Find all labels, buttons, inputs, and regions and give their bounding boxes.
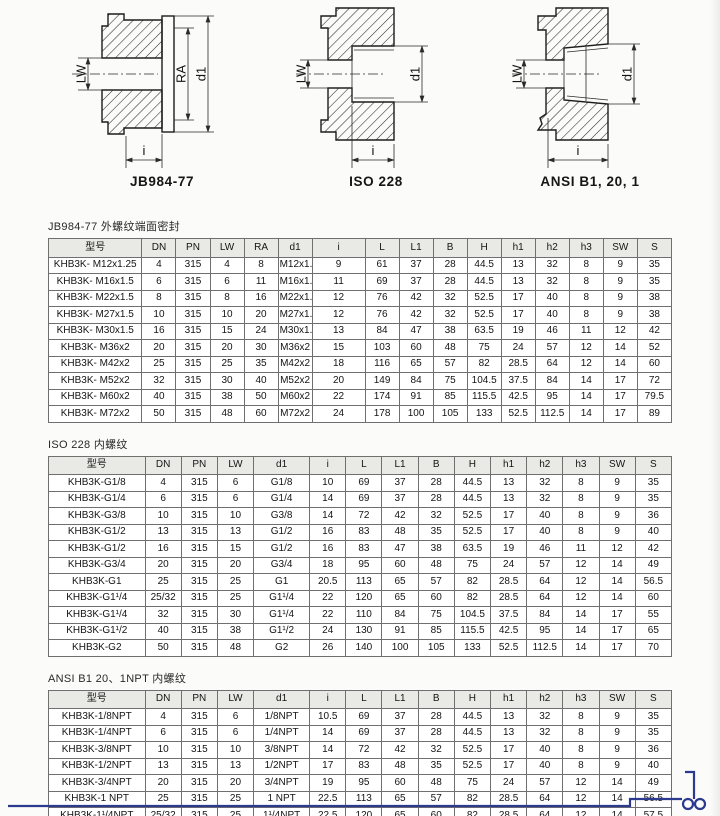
value-cell: 35 bbox=[418, 524, 454, 541]
value-cell: 25 bbox=[145, 574, 181, 591]
value-cell: 40 bbox=[527, 508, 563, 525]
model-cell: KHB3K- M12x1.25 bbox=[49, 257, 142, 274]
value-cell: 17 bbox=[599, 607, 635, 624]
value-cell: M27x1.5 bbox=[278, 307, 312, 324]
value-cell: 46 bbox=[527, 541, 563, 558]
value-cell: 82 bbox=[467, 356, 501, 373]
value-cell: 61 bbox=[365, 257, 399, 274]
value-cell: 6 bbox=[210, 274, 244, 291]
corner-ornament-icon bbox=[0, 756, 720, 816]
value-cell: 24 bbox=[244, 323, 278, 340]
value-cell: 17 bbox=[501, 290, 535, 307]
value-cell: 52.5 bbox=[454, 524, 490, 541]
value-cell: 35 bbox=[635, 709, 671, 726]
value-cell: 315 bbox=[181, 607, 217, 624]
value-cell: 14 bbox=[599, 590, 635, 607]
value-cell: 32 bbox=[527, 725, 563, 742]
value-cell: 14 bbox=[310, 491, 346, 508]
model-cell: KHB3K-G1 bbox=[49, 574, 146, 591]
value-cell: 60 bbox=[399, 340, 433, 357]
table-row: KHB3K-G1/463156G1/41469372844.513328935 bbox=[49, 491, 672, 508]
value-cell: 25/32 bbox=[145, 590, 181, 607]
column-header: H bbox=[454, 456, 490, 475]
value-cell: 40 bbox=[635, 524, 671, 541]
model-cell: KHB3K-G1/4 bbox=[49, 491, 146, 508]
value-cell: 37 bbox=[399, 274, 433, 291]
value-cell: 28.5 bbox=[501, 356, 535, 373]
value-cell: 60 bbox=[635, 590, 671, 607]
value-cell: 16 bbox=[310, 524, 346, 541]
value-cell: 63.5 bbox=[467, 323, 501, 340]
table-row: KHB3K-G12531525G120.511365578228.5641214… bbox=[49, 574, 672, 591]
value-cell: 40 bbox=[527, 524, 563, 541]
table-row: KHB3K- M22x1.58315816M22x1.51276423252.5… bbox=[49, 290, 672, 307]
value-cell: 20 bbox=[217, 557, 253, 574]
value-cell: 35 bbox=[635, 725, 671, 742]
value-cell: 1/4NPT bbox=[254, 725, 310, 742]
value-cell: 22 bbox=[312, 389, 365, 406]
model-cell: KHB3K- M16x1.5 bbox=[49, 274, 142, 291]
value-cell: 48 bbox=[210, 406, 244, 423]
model-cell: KHB3K-G1/8 bbox=[49, 475, 146, 492]
value-cell: 9 bbox=[599, 508, 635, 525]
value-cell: 116 bbox=[365, 356, 399, 373]
column-header: d1 bbox=[254, 456, 310, 475]
value-cell: 8 bbox=[569, 274, 603, 291]
value-cell: 315 bbox=[181, 475, 217, 492]
value-cell: 30 bbox=[244, 340, 278, 357]
column-header: h2 bbox=[527, 690, 563, 709]
value-cell: 24 bbox=[312, 406, 365, 423]
plug-cross-section-drawing: LW d1 i bbox=[490, 2, 690, 174]
value-cell: 60 bbox=[418, 590, 454, 607]
value-cell: 35 bbox=[637, 257, 671, 274]
value-cell: 57 bbox=[535, 340, 569, 357]
column-header: d1 bbox=[278, 239, 312, 258]
column-header: RA bbox=[244, 239, 278, 258]
value-cell: 46 bbox=[535, 323, 569, 340]
value-cell: 40 bbox=[145, 623, 181, 640]
value-cell: 11 bbox=[569, 323, 603, 340]
value-cell: 69 bbox=[346, 475, 382, 492]
column-header: LW bbox=[217, 690, 253, 709]
value-cell: 64 bbox=[535, 356, 569, 373]
value-cell: 35 bbox=[635, 491, 671, 508]
column-header: S bbox=[635, 690, 671, 709]
column-header: i bbox=[310, 456, 346, 475]
value-cell: 40 bbox=[244, 373, 278, 390]
value-cell: 37 bbox=[399, 257, 433, 274]
value-cell: 315 bbox=[176, 290, 210, 307]
value-cell: 69 bbox=[346, 709, 382, 726]
table-row: KHB3K- M27x1.5103151020M27x1.51276423252… bbox=[49, 307, 672, 324]
value-cell: 315 bbox=[176, 274, 210, 291]
dim-label-ra: RA bbox=[173, 65, 188, 83]
column-header: DN bbox=[145, 690, 181, 709]
value-cell: 315 bbox=[181, 491, 217, 508]
drawing-jb984: LW RA d1 i JB984-77 bbox=[62, 2, 262, 205]
value-cell: 57 bbox=[527, 557, 563, 574]
model-cell: KHB3K- M22x1.5 bbox=[49, 290, 142, 307]
value-cell: 6 bbox=[142, 274, 176, 291]
value-cell: 315 bbox=[181, 590, 217, 607]
value-cell: M16x1.5 bbox=[278, 274, 312, 291]
dim-label-i: i bbox=[372, 143, 375, 158]
value-cell: 79.5 bbox=[637, 389, 671, 406]
table-row: KHB3K-G25031548G22614010010513352.5112.5… bbox=[49, 640, 672, 657]
value-cell: 14 bbox=[310, 725, 346, 742]
value-cell: 14 bbox=[603, 356, 637, 373]
value-cell: 36 bbox=[635, 508, 671, 525]
column-header: L bbox=[346, 690, 382, 709]
value-cell: 42 bbox=[382, 508, 418, 525]
value-cell: 14 bbox=[599, 574, 635, 591]
value-cell: 17 bbox=[603, 406, 637, 423]
value-cell: 315 bbox=[181, 557, 217, 574]
value-cell: 32 bbox=[535, 257, 569, 274]
value-cell: 10 bbox=[145, 508, 181, 525]
value-cell: 35 bbox=[244, 356, 278, 373]
value-cell: 11 bbox=[312, 274, 365, 291]
model-cell: KHB3K- M52x2 bbox=[49, 373, 142, 390]
value-cell: 85 bbox=[433, 389, 467, 406]
value-cell: 69 bbox=[346, 491, 382, 508]
model-cell: KHB3K-G1/2 bbox=[49, 524, 146, 541]
value-cell: 65 bbox=[635, 623, 671, 640]
value-cell: 4 bbox=[145, 475, 181, 492]
value-cell: 84 bbox=[365, 323, 399, 340]
value-cell: 47 bbox=[382, 541, 418, 558]
value-cell: 15 bbox=[217, 541, 253, 558]
value-cell: 130 bbox=[346, 623, 382, 640]
value-cell: 6 bbox=[217, 475, 253, 492]
value-cell: 20 bbox=[312, 373, 365, 390]
plug-cross-section-drawing: LW RA d1 i bbox=[62, 2, 262, 174]
value-cell: 17 bbox=[491, 524, 527, 541]
value-cell: 8 bbox=[244, 257, 278, 274]
value-cell: G1/8 bbox=[254, 475, 310, 492]
model-cell: KHB3K-G3/4 bbox=[49, 557, 146, 574]
catalog-page: LW RA d1 i JB984-77 bbox=[0, 0, 720, 816]
value-cell: 9 bbox=[603, 307, 637, 324]
value-cell: 37 bbox=[382, 725, 418, 742]
value-cell: 44.5 bbox=[454, 475, 490, 492]
table-row: KHB3K- M36x2203152030M36x215103604875245… bbox=[49, 340, 672, 357]
value-cell: 110 bbox=[346, 607, 382, 624]
value-cell: 9 bbox=[599, 475, 635, 492]
value-cell: 64 bbox=[527, 590, 563, 607]
value-cell: 28 bbox=[418, 725, 454, 742]
value-cell: 47 bbox=[399, 323, 433, 340]
value-cell: 12 bbox=[603, 323, 637, 340]
drawing-ansi: LW d1 i ANSI B1, 20, 1 bbox=[490, 2, 690, 205]
value-cell: 13 bbox=[145, 524, 181, 541]
value-cell: 20 bbox=[210, 340, 244, 357]
value-cell: 315 bbox=[181, 623, 217, 640]
value-cell: 13 bbox=[491, 491, 527, 508]
value-cell: 48 bbox=[433, 340, 467, 357]
dim-label-lw: LW bbox=[73, 64, 88, 83]
column-header: i bbox=[310, 690, 346, 709]
value-cell: 13 bbox=[501, 257, 535, 274]
value-cell: 16 bbox=[142, 323, 176, 340]
value-cell: 14 bbox=[599, 557, 635, 574]
column-header: h1 bbox=[491, 690, 527, 709]
column-header: DN bbox=[142, 239, 176, 258]
value-cell: 32 bbox=[418, 508, 454, 525]
value-cell: 20 bbox=[142, 340, 176, 357]
table-row: KHB3K-1/8NPT431561/8NPT10.569372844.5133… bbox=[49, 709, 672, 726]
table-row: KHB3K- M12x1.25431548M12x1.25961372844.5… bbox=[49, 257, 672, 274]
value-cell: 44.5 bbox=[467, 257, 501, 274]
table-row: KHB3K- M30x1.5163151524M30x1.51384473863… bbox=[49, 323, 672, 340]
value-cell: 42 bbox=[635, 541, 671, 558]
value-cell: 14 bbox=[310, 508, 346, 525]
value-cell: 32 bbox=[527, 475, 563, 492]
value-cell: 12 bbox=[599, 541, 635, 558]
value-cell: 44.5 bbox=[467, 274, 501, 291]
value-cell: 1/8NPT bbox=[254, 709, 310, 726]
value-cell: G1/2 bbox=[254, 524, 310, 541]
model-cell: KHB3K- M42x2 bbox=[49, 356, 142, 373]
value-cell: 42.5 bbox=[501, 389, 535, 406]
value-cell: 8 bbox=[563, 491, 599, 508]
column-header: i bbox=[312, 239, 365, 258]
value-cell: 8 bbox=[569, 307, 603, 324]
value-cell: 10 bbox=[210, 307, 244, 324]
column-header: DN bbox=[145, 456, 181, 475]
column-header: B bbox=[433, 239, 467, 258]
dim-label-lw: LW bbox=[293, 64, 308, 83]
column-header: h1 bbox=[491, 456, 527, 475]
value-cell: 120 bbox=[346, 590, 382, 607]
value-cell: 83 bbox=[346, 524, 382, 541]
value-cell: 20.5 bbox=[310, 574, 346, 591]
value-cell: 28.5 bbox=[491, 574, 527, 591]
value-cell: 37 bbox=[382, 709, 418, 726]
value-cell: M42x2 bbox=[278, 356, 312, 373]
value-cell: 315 bbox=[181, 524, 217, 541]
section-jb984: JB984-77 外螺纹端面密封 型号DNPNLWRAd1iLL1BHh1h2h… bbox=[48, 218, 672, 423]
value-cell: G1/4 bbox=[254, 491, 310, 508]
value-cell: 57 bbox=[418, 574, 454, 591]
value-cell: 100 bbox=[382, 640, 418, 657]
value-cell: 20 bbox=[244, 307, 278, 324]
value-cell: 24 bbox=[501, 340, 535, 357]
value-cell: 83 bbox=[346, 541, 382, 558]
value-cell: 174 bbox=[365, 389, 399, 406]
table-header-row: 型号DNPNLWd1iLL1BHh1h2h3SWS bbox=[49, 456, 672, 475]
value-cell: M60x2 bbox=[278, 389, 312, 406]
value-cell: 38 bbox=[637, 307, 671, 324]
value-cell: G1¹/4 bbox=[254, 607, 310, 624]
value-cell: 4 bbox=[210, 257, 244, 274]
model-cell: KHB3K-G3/8 bbox=[49, 508, 146, 525]
value-cell: 133 bbox=[467, 406, 501, 423]
value-cell: 104.5 bbox=[454, 607, 490, 624]
model-cell: KHB3K- M60x2 bbox=[49, 389, 142, 406]
column-header: B bbox=[418, 690, 454, 709]
value-cell: 14 bbox=[563, 640, 599, 657]
value-cell: 50 bbox=[244, 389, 278, 406]
table-row: KHB3K- M60x2403153850M60x2221749185115.5… bbox=[49, 389, 672, 406]
column-header: h3 bbox=[569, 239, 603, 258]
value-cell: 17 bbox=[599, 640, 635, 657]
value-cell: 48 bbox=[217, 640, 253, 657]
value-cell: 315 bbox=[176, 406, 210, 423]
value-cell: G2 bbox=[254, 640, 310, 657]
value-cell: 12 bbox=[312, 290, 365, 307]
value-cell: 14 bbox=[563, 607, 599, 624]
table-header-row: 型号DNPNLWd1iLL1BHh1h2h3SWS bbox=[49, 690, 672, 709]
value-cell: 84 bbox=[382, 607, 418, 624]
value-cell: 38 bbox=[217, 623, 253, 640]
value-cell: 18 bbox=[312, 356, 365, 373]
value-cell: 14 bbox=[569, 373, 603, 390]
value-cell: 18 bbox=[310, 557, 346, 574]
value-cell: 12 bbox=[312, 307, 365, 324]
value-cell: 72 bbox=[637, 373, 671, 390]
value-cell: 35 bbox=[635, 475, 671, 492]
value-cell: 315 bbox=[176, 373, 210, 390]
value-cell: 8 bbox=[563, 709, 599, 726]
value-cell: 40 bbox=[142, 389, 176, 406]
value-cell: 42 bbox=[399, 307, 433, 324]
value-cell: 60 bbox=[244, 406, 278, 423]
spec-table-jb984: 型号DNPNLWRAd1iLL1BHh1h2h3SWS KHB3K- M12x1… bbox=[48, 238, 672, 423]
value-cell: 4 bbox=[142, 257, 176, 274]
value-cell: 42 bbox=[399, 290, 433, 307]
value-cell: 38 bbox=[433, 323, 467, 340]
value-cell: 44.5 bbox=[454, 491, 490, 508]
value-cell: 14 bbox=[603, 340, 637, 357]
value-cell: G1 bbox=[254, 574, 310, 591]
value-cell: 37 bbox=[382, 475, 418, 492]
value-cell: 315 bbox=[176, 307, 210, 324]
value-cell: 315 bbox=[181, 508, 217, 525]
value-cell: 16 bbox=[145, 541, 181, 558]
value-cell: 95 bbox=[527, 623, 563, 640]
value-cell: 100 bbox=[399, 406, 433, 423]
value-cell: 72 bbox=[346, 508, 382, 525]
value-cell: 8 bbox=[142, 290, 176, 307]
table-row: KHB3K-G1¹/425/3231525G1¹/42212065608228.… bbox=[49, 590, 672, 607]
value-cell: 104.5 bbox=[467, 373, 501, 390]
value-cell: 65 bbox=[382, 574, 418, 591]
value-cell: 12 bbox=[569, 356, 603, 373]
table-row: KHB3K-G1/21331513G1/21683483552.51740894… bbox=[49, 524, 672, 541]
value-cell: 12 bbox=[563, 557, 599, 574]
value-cell: 37.5 bbox=[501, 373, 535, 390]
value-cell: 37.5 bbox=[491, 607, 527, 624]
value-cell: 26 bbox=[310, 640, 346, 657]
dim-label-i: i bbox=[143, 143, 146, 158]
value-cell: G1¹/4 bbox=[254, 590, 310, 607]
value-cell: 37 bbox=[382, 491, 418, 508]
value-cell: 115.5 bbox=[467, 389, 501, 406]
value-cell: 84 bbox=[535, 373, 569, 390]
value-cell: 32 bbox=[433, 290, 467, 307]
drawing-title: ANSI B1, 20, 1 bbox=[490, 174, 690, 189]
table-row: KHB3K-G1¹/24031538G1¹/2241309185115.542.… bbox=[49, 623, 672, 640]
value-cell: 13 bbox=[491, 475, 527, 492]
value-cell: 4 bbox=[145, 709, 181, 726]
value-cell: 14 bbox=[569, 389, 603, 406]
value-cell: 8 bbox=[563, 725, 599, 742]
value-cell: 10 bbox=[142, 307, 176, 324]
value-cell: 20 bbox=[145, 557, 181, 574]
value-cell: 38 bbox=[418, 541, 454, 558]
value-cell: 52.5 bbox=[467, 307, 501, 324]
value-cell: 15 bbox=[210, 323, 244, 340]
value-cell: 28 bbox=[433, 257, 467, 274]
value-cell: 32 bbox=[527, 491, 563, 508]
value-cell: 6 bbox=[145, 725, 181, 742]
value-cell: 25 bbox=[142, 356, 176, 373]
column-header: B bbox=[418, 456, 454, 475]
value-cell: 28.5 bbox=[491, 590, 527, 607]
value-cell: 133 bbox=[454, 640, 490, 657]
value-cell: 315 bbox=[176, 323, 210, 340]
drawing-iso228: LW d1 i ISO 228 bbox=[276, 2, 476, 205]
value-cell: 75 bbox=[454, 557, 490, 574]
value-cell: 6 bbox=[217, 709, 253, 726]
value-cell: 12 bbox=[563, 590, 599, 607]
value-cell: 50 bbox=[142, 406, 176, 423]
value-cell: 9 bbox=[599, 524, 635, 541]
value-cell: 52.5 bbox=[501, 406, 535, 423]
value-cell: 315 bbox=[181, 541, 217, 558]
value-cell: 85 bbox=[418, 623, 454, 640]
model-cell: KHB3K-G1/2 bbox=[49, 541, 146, 558]
value-cell: 315 bbox=[176, 340, 210, 357]
value-cell: 10.5 bbox=[310, 709, 346, 726]
value-cell: 315 bbox=[181, 725, 217, 742]
value-cell: 55 bbox=[635, 607, 671, 624]
value-cell: 44.5 bbox=[454, 709, 490, 726]
value-cell: 84 bbox=[527, 607, 563, 624]
value-cell: 30 bbox=[210, 373, 244, 390]
value-cell: 91 bbox=[399, 389, 433, 406]
value-cell: 9 bbox=[599, 725, 635, 742]
column-header: L bbox=[346, 456, 382, 475]
value-cell: 17 bbox=[599, 623, 635, 640]
value-cell: G1¹/2 bbox=[254, 623, 310, 640]
value-cell: 103 bbox=[365, 340, 399, 357]
dim-label-d1: d1 bbox=[619, 67, 634, 81]
table-row: KHB3K-G1¹/43231530G1¹/4221108475104.537.… bbox=[49, 607, 672, 624]
value-cell: 25 bbox=[217, 574, 253, 591]
value-cell: 42.5 bbox=[491, 623, 527, 640]
value-cell: 17 bbox=[491, 508, 527, 525]
model-cell: KHB3K- M27x1.5 bbox=[49, 307, 142, 324]
value-cell: M22x1.5 bbox=[278, 290, 312, 307]
value-cell: 65 bbox=[382, 590, 418, 607]
value-cell: 17 bbox=[603, 373, 637, 390]
value-cell: 48 bbox=[382, 524, 418, 541]
value-cell: 38 bbox=[637, 290, 671, 307]
value-cell: 6 bbox=[217, 491, 253, 508]
column-header: S bbox=[635, 456, 671, 475]
value-cell: 17 bbox=[501, 307, 535, 324]
value-cell: 315 bbox=[176, 356, 210, 373]
section-title: ISO 228 内螺纹 bbox=[48, 436, 672, 452]
table-row: KHB3K-G3/42031520G3/41895604875245712144… bbox=[49, 557, 672, 574]
value-cell: 315 bbox=[176, 257, 210, 274]
value-cell: 76 bbox=[365, 290, 399, 307]
table-header-row: 型号DNPNLWRAd1iLL1BHh1h2h3SWS bbox=[49, 239, 672, 258]
value-cell: 64 bbox=[527, 574, 563, 591]
